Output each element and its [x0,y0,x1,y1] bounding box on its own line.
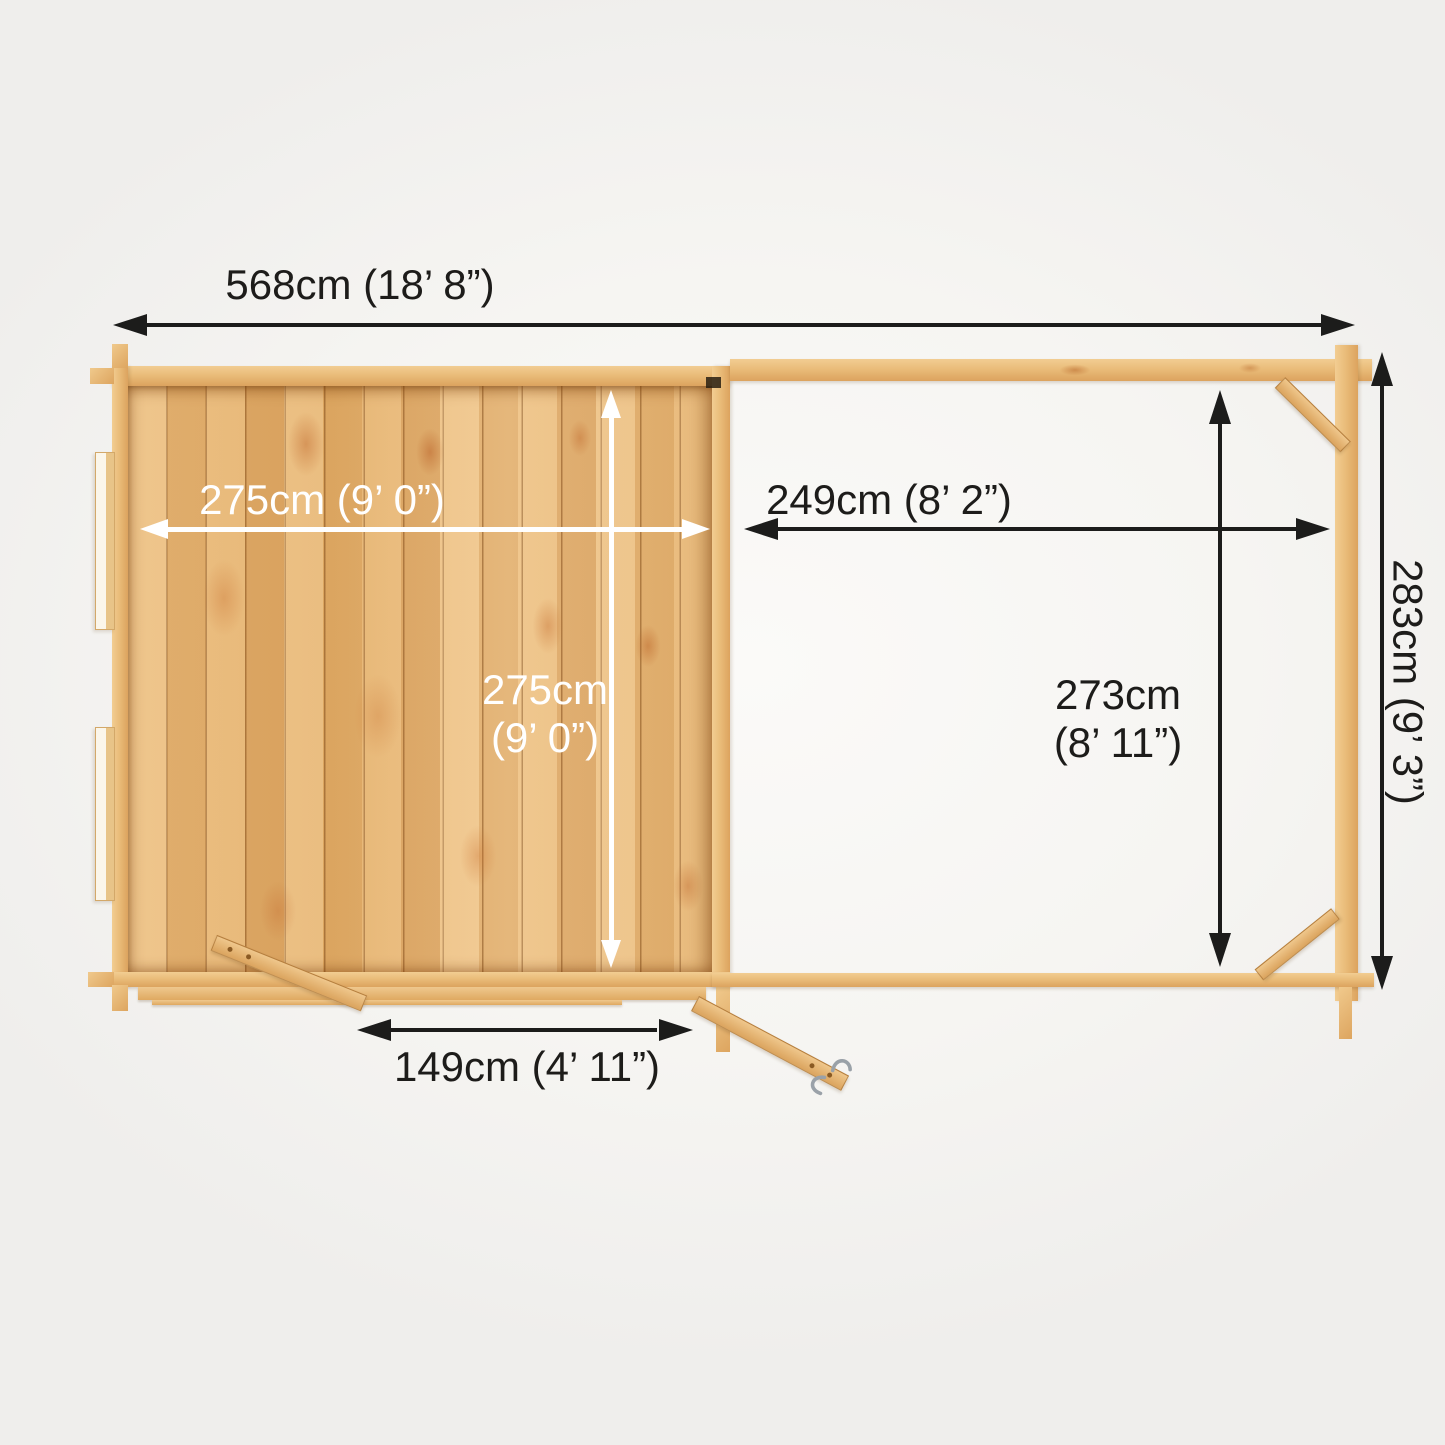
cabin-floor-planks [128,386,712,973]
corner-joint-bottom-left [88,972,114,987]
canopy-beam-top [730,359,1372,381]
cabin-wall-right [712,366,730,987]
dim-door-width-label: 149cm (4’ 11”) [394,1044,660,1089]
dim-overall-width-line [145,323,1323,327]
dim-cabin-depth-line [609,416,614,942]
dim-canopy-depth-line2: (8’ 11”) [1054,719,1182,767]
arrowhead-down-icon [1371,956,1393,990]
arrowhead-left-icon [744,518,778,540]
arrowhead-left-icon [140,519,168,539]
arrowhead-right-icon [659,1019,693,1041]
dim-overall-width-label: 568cm (18’ 8”) [225,262,494,307]
arrowhead-up-icon [601,390,621,418]
arrowhead-left-icon [357,1019,391,1041]
canopy-brace-bottom-right [1255,908,1340,980]
dim-canopy-width-label: 249cm (8’ 2”) [766,477,1012,522]
corner-joint-top-left [112,344,128,368]
corner-joint-bottom-left-2 [112,985,128,1011]
dim-door-width-line [389,1028,657,1032]
cabin-wall-top [112,366,730,386]
dim-overall-depth-label: 283cm (9’ 3”) [1385,559,1430,805]
canopy-beam-bottom [712,973,1374,987]
dim-canopy-depth-line [1218,421,1222,936]
arrowhead-right-icon [682,519,710,539]
side-window-top [95,452,115,630]
dim-cabin-depth-line2: (9’ 0”) [482,714,608,762]
corner-joint-top-left-2 [90,368,114,384]
arrowhead-right-icon [1321,314,1355,336]
door-right-panel-open [691,996,849,1091]
door-hinge-pin [245,954,252,961]
dim-cabin-depth-line1: 275cm [482,666,608,714]
cabin-front-step-board [138,987,706,1000]
arrowhead-right-icon [1296,518,1330,540]
arrowhead-up-icon [1209,390,1231,424]
arrowhead-left-icon [113,314,147,336]
arrowhead-down-icon [1209,933,1231,967]
arrowhead-up-icon [1371,352,1393,386]
dim-cabin-width-line [166,527,684,532]
dim-cabin-width-label: 275cm (9’ 0”) [199,477,445,522]
cabin-canopy-junction-shadow [706,377,721,388]
side-window-bottom [95,727,115,901]
dim-canopy-depth-label: 273cm (8’ 11”) [1054,671,1182,767]
cabin-wall-bottom [112,972,730,987]
cabin-front-step-board-2 [152,1000,622,1005]
dim-canopy-depth-line1: 273cm [1054,671,1182,719]
canopy-post-stub [1339,987,1352,1039]
dim-overall-depth-line [1380,383,1384,959]
arrowhead-down-icon [601,940,621,968]
plan-diagram: 568cm (18’ 8”) 275cm (9’ 0”) 275cm (9’ 0… [0,0,1445,1445]
door-hinge-pin [227,946,234,953]
dim-cabin-depth-label: 275cm (9’ 0”) [482,666,608,762]
door-handle-icon [790,1035,868,1113]
